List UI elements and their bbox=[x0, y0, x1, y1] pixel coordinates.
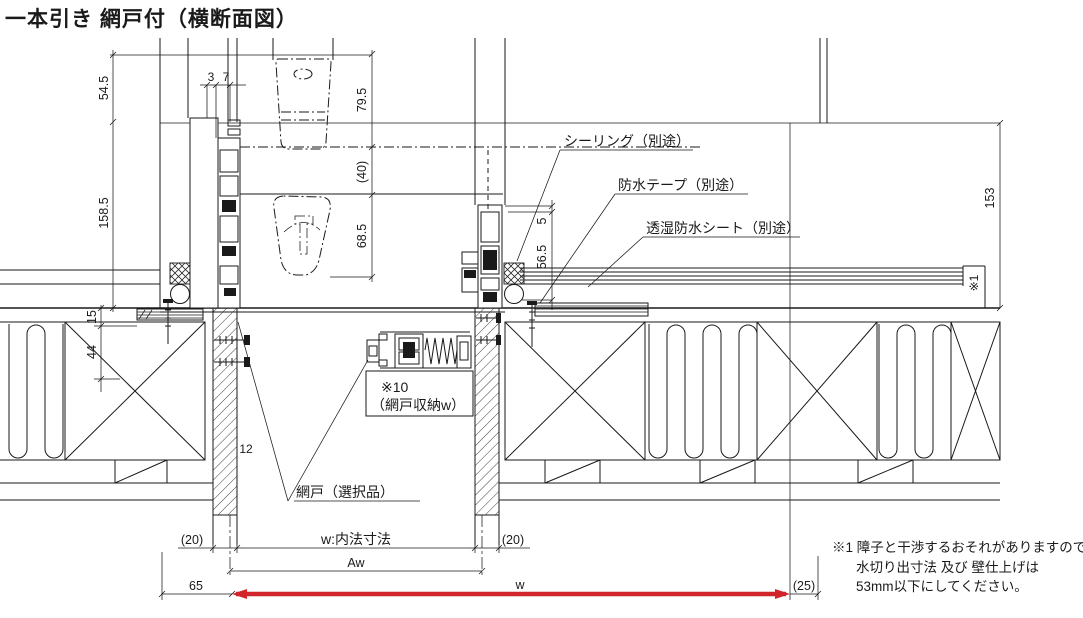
dim-right-56-5: 56.5 bbox=[535, 245, 549, 269]
dim-gap-right: (20) bbox=[502, 533, 524, 547]
dim-head-54-5: 54.5 bbox=[97, 76, 111, 100]
stud-cross-section bbox=[757, 322, 877, 460]
bottom-plate-lines bbox=[0, 460, 1000, 500]
casing-strip-right bbox=[475, 308, 499, 575]
callout-waterproof-tape: 防水テープ（別途） bbox=[618, 177, 743, 193]
dim-left-15: 15 bbox=[85, 310, 99, 324]
dim-handle-40: (40) bbox=[355, 161, 369, 183]
sealant-backer-right bbox=[504, 263, 524, 304]
insulation-batt bbox=[649, 324, 757, 458]
drawing-title: 一本引き 網戸付（横断面図） bbox=[5, 7, 298, 31]
dim-25: (25) bbox=[793, 579, 815, 593]
note-line-1: ※1 障子と干渉するおそれがありますので bbox=[832, 540, 1083, 555]
dim-left-158-5: 158.5 bbox=[97, 197, 111, 228]
screen-pocket-ref: ※10 bbox=[381, 379, 409, 395]
note-line-2: 水切り出寸法 及び 壁仕上げは bbox=[856, 560, 1039, 575]
red-arrow-right bbox=[775, 589, 790, 599]
callout-screen-door: 網戸（選択品） bbox=[296, 484, 394, 500]
dim-gap-left: (20) bbox=[181, 533, 203, 547]
cad-drawing-canvas: 一本引き 網戸付（横断面図） 54.5 158.5 15 44 79.5 (40… bbox=[0, 0, 1083, 618]
callout-sealing: シーリング（別途） bbox=[564, 133, 690, 149]
pocket-spring bbox=[425, 338, 457, 364]
red-width-dimension bbox=[232, 589, 790, 599]
dim-inner-width: w:内法寸法 bbox=[320, 531, 391, 547]
dim-left-12: 12 bbox=[239, 442, 253, 456]
dim-head-7: 7 bbox=[223, 70, 230, 84]
dim-65: 65 bbox=[189, 579, 203, 593]
stud-cross-section bbox=[951, 322, 1000, 460]
dim-aw: Aw bbox=[347, 556, 365, 570]
dim-right-153: 153 bbox=[983, 188, 997, 209]
window-frame-right-jamb bbox=[462, 150, 502, 308]
stud-cross-section bbox=[505, 322, 645, 460]
dim-right-5: 5 bbox=[535, 217, 549, 224]
dim-handle-79-5: 79.5 bbox=[355, 88, 369, 112]
casing-strip-left bbox=[213, 308, 237, 575]
dim-head-3: 3 bbox=[208, 70, 215, 84]
sealant-backer-left bbox=[170, 263, 190, 304]
sliding-handle-outline bbox=[274, 59, 331, 275]
callout-breathable-sheet: 透湿防水シート（別途） bbox=[646, 220, 800, 236]
red-arrow-left bbox=[232, 589, 247, 599]
note-line-3: 53mm以下にしてください。 bbox=[856, 579, 1028, 594]
exterior-siding-layers bbox=[520, 266, 985, 308]
screen-pocket-mechanism bbox=[367, 332, 471, 368]
dim-left-44: 44 bbox=[85, 345, 99, 359]
stud-cross-section bbox=[65, 322, 205, 460]
insulation-batt bbox=[9, 324, 63, 458]
insulation-batt bbox=[879, 324, 951, 458]
wall-note-ref-mark: ※1 bbox=[967, 274, 981, 291]
dim-handle-68-5: 68.5 bbox=[355, 224, 369, 248]
screen-pocket-label: （網戸収納w） bbox=[371, 397, 465, 413]
wall-section-left bbox=[0, 322, 205, 460]
wall-section-right bbox=[505, 322, 1000, 460]
dim-overall-w: w bbox=[514, 578, 525, 592]
window-frame-left-jamb bbox=[190, 118, 240, 308]
